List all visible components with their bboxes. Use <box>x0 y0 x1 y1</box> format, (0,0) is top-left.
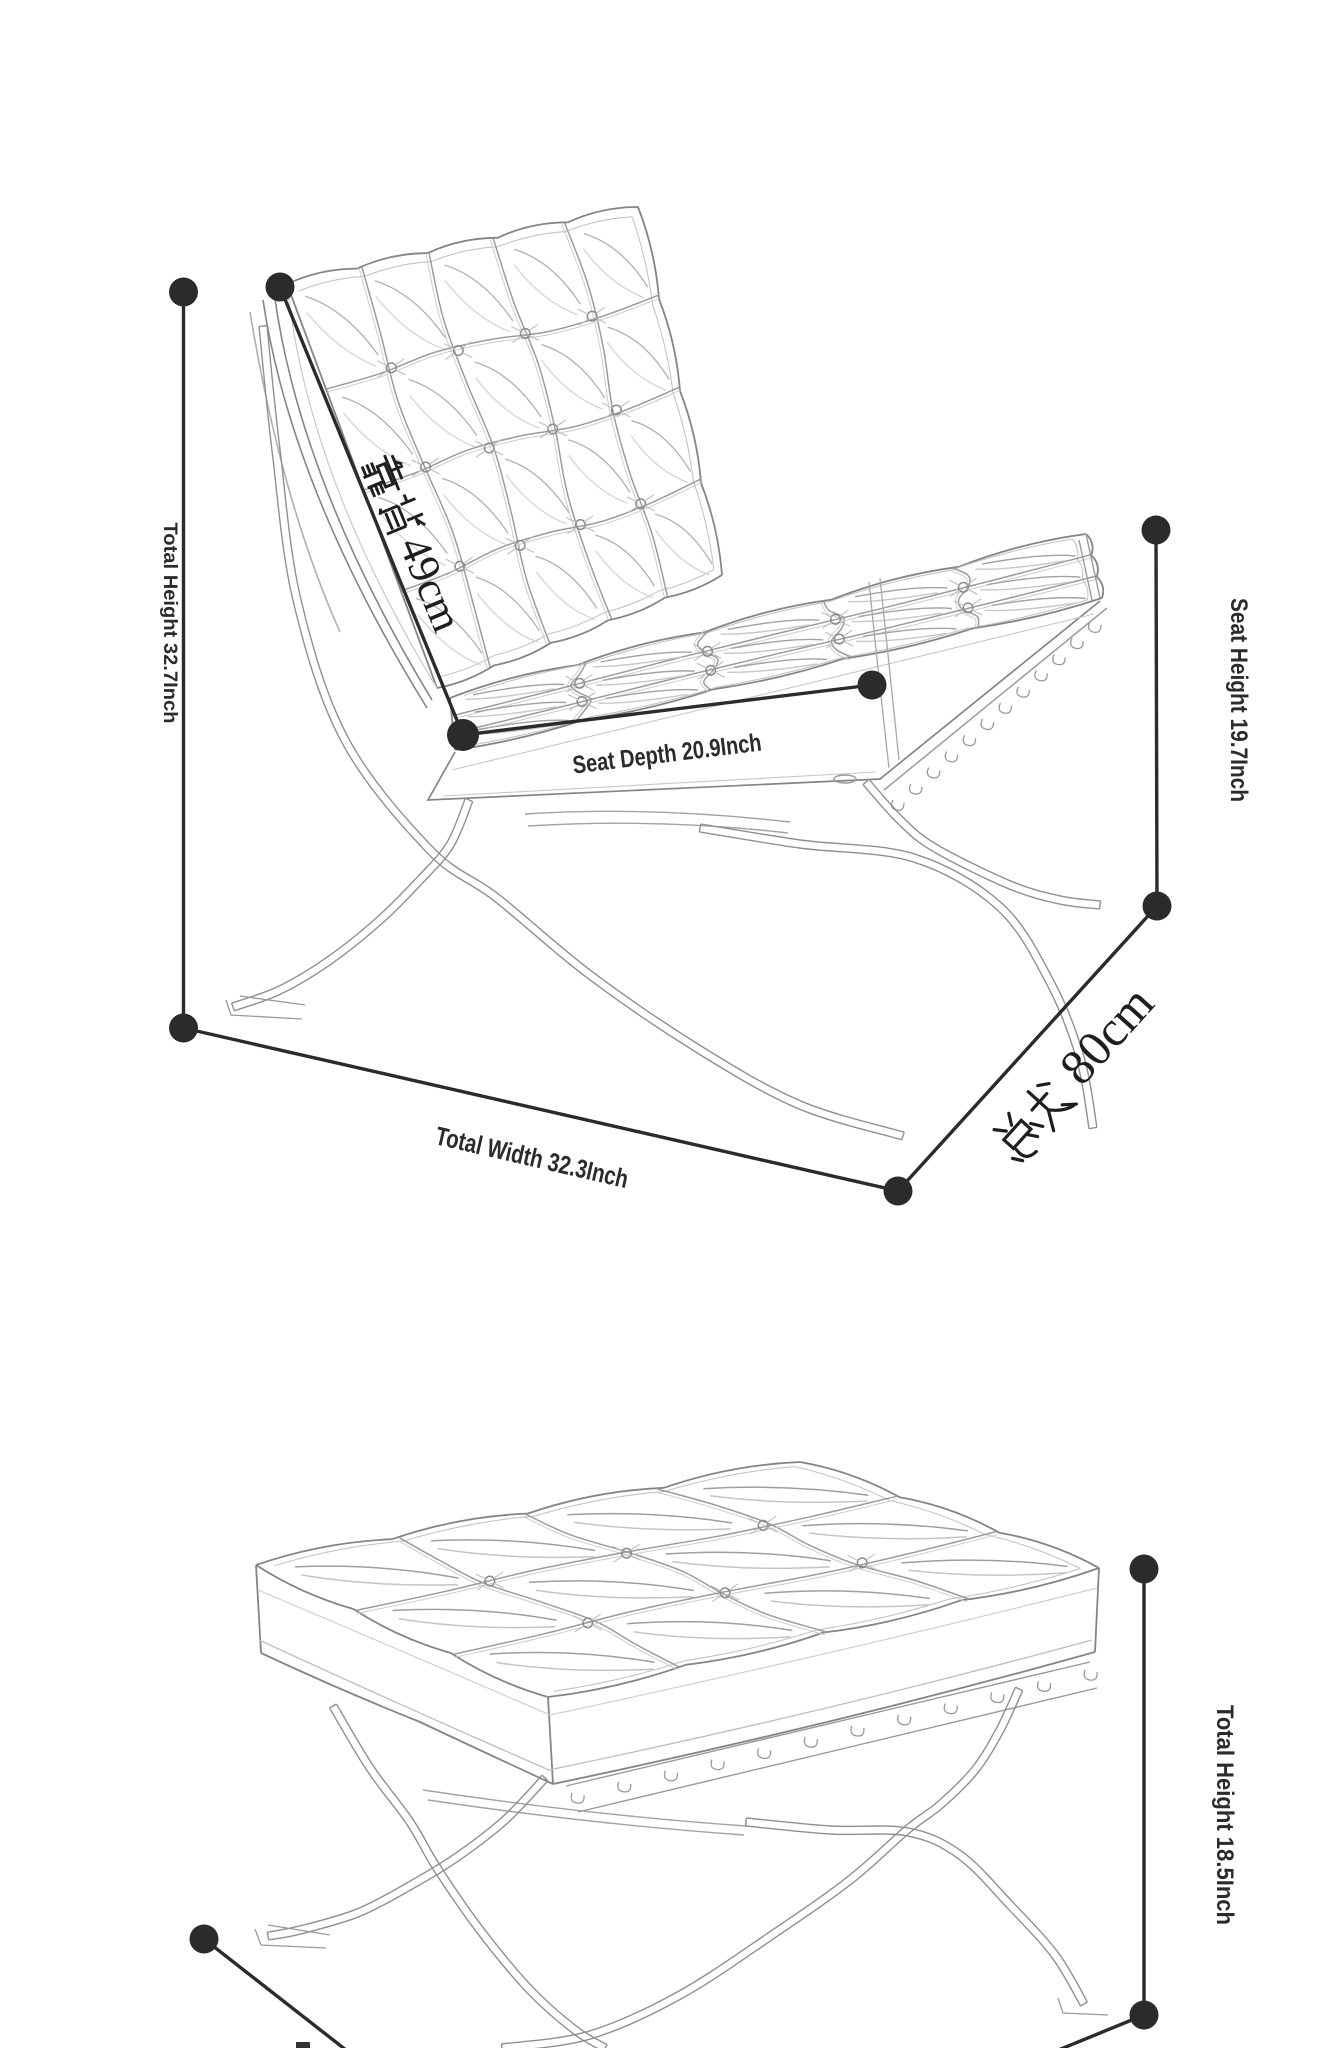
svg-text:Total Height 18.5Inch: Total Height 18.5Inch <box>1211 1705 1238 1925</box>
svg-text:Seat Height 19.7Inch: Seat Height 19.7Inch <box>1225 598 1252 802</box>
svg-text:Total Height 32.7Inch: Total Height 32.7Inch <box>159 523 180 724</box>
